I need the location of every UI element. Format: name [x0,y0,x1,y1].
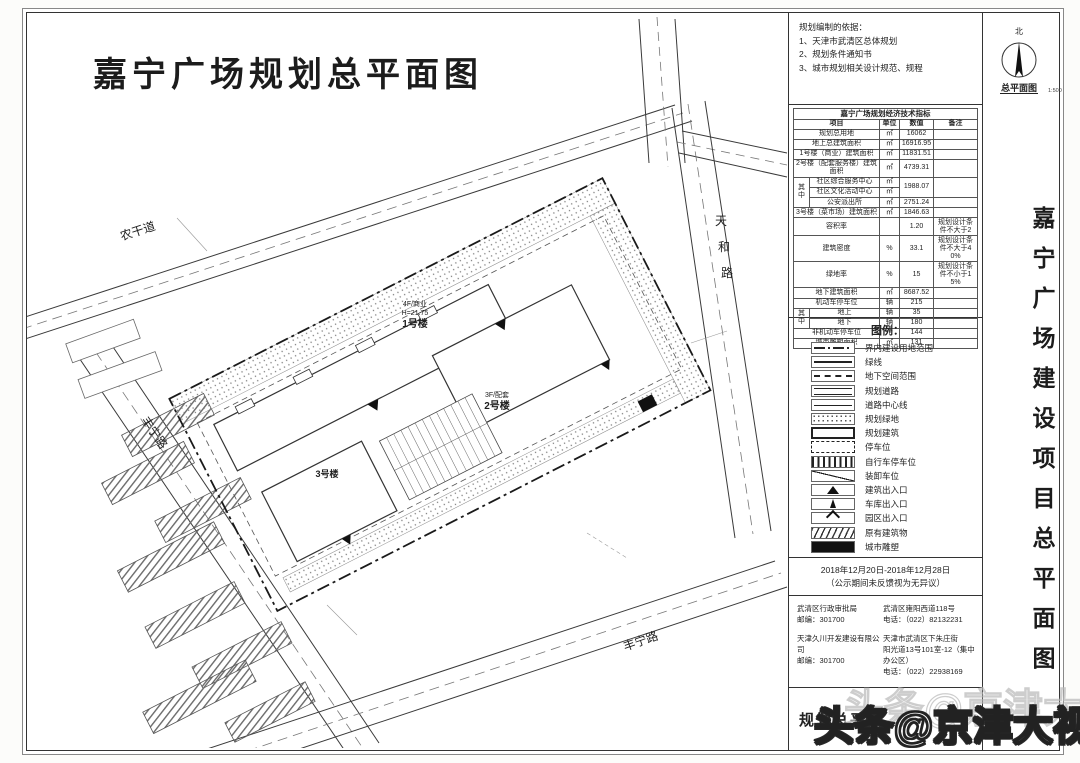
drawing-title: 嘉宁广场规划总平面图 [93,47,483,96]
table-cell: 其中 [794,177,810,207]
table-cell: 地上 [810,308,880,318]
watermark: 头条@京津大视野 [814,694,1080,752]
compass-scale: 1:500 [1048,88,1062,94]
legend-item: 园区出入口 [799,511,976,525]
tech-indicator-table: 嘉宁广场规划经济技术指标项目单位数值备注规划总用地㎡16062地上总建筑面积㎡1… [793,108,978,349]
table-cell [934,288,978,298]
road-label-fengninglu-south: 丰宁路 [621,628,660,654]
legend-label: 规划道路 [865,385,899,397]
building-1-height: H=21.75 [402,310,429,317]
legend-label: 停车位 [865,441,891,453]
table-cell [934,149,978,159]
legend-label: 界内建设用地范围 [865,342,933,354]
table-header-cell: 数值 [900,119,934,129]
table-cell: 社区文化活动中心 [810,187,880,197]
table-cell: 16062 [900,129,934,139]
center-line-swatch [811,399,855,411]
diag-line-swatch [811,470,855,482]
table-cell [934,159,978,177]
table-cell: ㎡ [880,187,900,197]
contact-line: 武清区行政审批局 [797,603,883,614]
tech-indicator-section: 嘉宁广场规划经济技术指标项目单位数值备注规划总用地㎡16062地上总建筑面积㎡1… [789,105,982,318]
note-item: 3、城市规划相关设计规范、规程 [799,62,976,75]
legend-label: 道路中心线 [865,399,908,411]
table-cell [934,177,978,197]
table-cell: % [880,236,900,262]
basis-notes: 规划编制的依据： 1、天津市武清区总体规划2、规划条件通知书3、城市规划相关设计… [789,13,982,105]
contact-block: 武清区行政审批局邮编：301700武清区雍阳西道118号电话：（022）8213… [797,603,978,626]
drawing-sheet: 嘉宁广场规划总平面图 [22,8,1064,755]
contact-block: 天津久川开发建设有限公司邮编：301700天津市武清区下朱庄街阳光道13号101… [797,633,978,678]
table-cell: 辆 [880,298,900,308]
table-cell: 2号楼（配套服务楼）建筑面积 [794,159,880,177]
building-1-info: 4F/商业 [403,299,427,308]
solid-fill-swatch [811,541,855,553]
table-cell: 绿地率 [794,262,880,288]
table-cell: 1.20 [900,218,934,236]
sheet-frame: 嘉宁广场规划总平面图 [26,12,1060,751]
table-cell: ㎡ [880,159,900,177]
legend-item: 道路中心线 [799,398,976,412]
dot-fill-swatch [811,413,855,425]
legend-item: 城市雕塑 [799,540,976,554]
basis-notes-list: 1、天津市武清区总体规划2、规划条件通知书3、城市规划相关设计规范、规程 [799,35,976,75]
legend-label: 园区出入口 [865,512,908,524]
table-cell: % [880,262,900,288]
table-cell: 1号楼（商业）建筑面积 [794,149,880,159]
legend-label: 建筑出入口 [865,484,908,496]
table-cell: 规划设计条件不小于15% [934,262,978,288]
legend-item: 原有建筑物 [799,525,976,539]
legend-item: 规划建筑 [799,426,976,440]
table-cell: 16916.95 [900,139,934,149]
table-cell: 容积率 [794,218,880,236]
legend-title: 图例： [799,322,976,338]
building-3-name: 3号楼 [315,468,338,479]
legend-item: 界内建设用地范围 [799,341,976,355]
table-cell: 地下建筑面积 [794,288,880,298]
table-cell: 地上总建筑面积 [794,139,880,149]
legend-label: 规划绿地 [865,413,899,425]
table-cell: 规划总用地 [794,129,880,139]
legend-item: 绿线 [799,355,976,369]
legend-item: 地下空间范围 [799,369,976,383]
table-cell: 8687.52 [900,288,934,298]
building-2-name: 2号楼 [484,399,510,412]
table-cell: 机动车停车位 [794,298,880,308]
note-item: 1、天津市武清区总体规划 [799,35,976,48]
table-cell: 规划设计条件不大于2 [934,218,978,236]
table-cell: ㎡ [880,288,900,298]
table-header-cell: 备注 [934,119,978,129]
table-cell: 公安派出所 [810,198,880,208]
contact-line: 电话：（022）82132231 [883,614,978,625]
table-cell: 4739.31 [900,159,934,177]
table-cell: 2751.24 [900,198,934,208]
legend-section: 图例： 界内建设用地范围绿线地下空间范围规划道路道路中心线规划绿地规划建筑停车位… [789,318,982,558]
table-cell: 建筑密度 [794,236,880,262]
table-cell: 215 [900,298,934,308]
table-cell: 35 [900,308,934,318]
contact-line: 天津市武清区下朱庄街 [883,633,978,644]
contact-info-section: 武清区行政审批局邮编：301700武清区雍阳西道118号电话：（022）8213… [789,596,982,688]
dashed-line-swatch [811,370,855,382]
building-2-info: 3F/配套 [485,390,509,399]
contact-right: 武清区雍阳西道118号电话：（022）82132231 [883,603,978,626]
legend-item: 规划道路 [799,384,976,398]
tri-narrow-swatch [811,498,855,510]
legend-label: 规划建筑 [865,427,899,439]
compass-caption: 总平面图 [1001,82,1037,93]
publicity-date-range: 2018年12月20日-2018年12月28日 [789,564,982,577]
contact-line: 天津久川开发建设有限公司 [797,633,883,656]
table-title: 嘉宁广场规划经济技术指标 [794,109,978,120]
table-header-cell: 项目 [794,119,880,129]
table-cell: 1988.07 [900,177,934,197]
table-cell: 11831.51 [900,149,934,159]
table-cell: 1846.63 [900,208,934,218]
tri-filled-swatch [811,484,855,496]
table-cell: 15 [900,262,934,288]
solid-line-swatch [811,356,855,368]
table-cell: 规划设计条件不大于40% [934,236,978,262]
diag-hatch-swatch [811,527,855,539]
side-title-bar: 北 总平面图 1:500 嘉宁广场建设项目总平面图 [983,13,1059,750]
contact-line: 邮编：301700 [797,614,883,625]
table-cell [934,129,978,139]
legend-label: 绿线 [865,356,882,368]
table-cell: ㎡ [880,177,900,187]
compass-needle [1015,42,1023,77]
legend-item: 建筑出入口 [799,483,976,497]
legend-list: 界内建设用地范围绿线地下空间范围规划道路道路中心线规划绿地规划建筑停车位自行车停… [799,341,976,554]
contact-line: 邮编：301700 [797,655,883,666]
table-cell: ㎡ [880,149,900,159]
legend-label: 车库出入口 [865,498,908,510]
north-compass: 北 总平面图 1:500 [979,21,1063,101]
legend-label: 装卸车位 [865,470,899,482]
publicity-note: （公示期间未反馈视为无异议） [789,577,982,590]
scanned-plan-page: 嘉宁广场规划总平面图 [0,0,1080,763]
contact-line: 阳光道13号101室-12（集中办公区） [883,644,978,667]
basis-notes-heading: 规划编制的依据： [799,21,976,34]
note-item: 2、规划条件通知书 [799,48,976,61]
chevron-swatch [811,512,855,524]
table-header-cell: 单位 [880,119,900,129]
legend-item: 车库出入口 [799,497,976,511]
table-cell: 33.1 [900,236,934,262]
table-cell: ㎡ [880,208,900,218]
table-cell [934,308,978,318]
green-band-east [590,203,710,403]
building-1-name: 1号楼 [402,317,428,330]
table-cell: 辆 [880,308,900,318]
table-cell [934,139,978,149]
dashdot-line-swatch [811,342,855,354]
legend-item: 停车位 [799,440,976,454]
table-cell: 社区综合服务中心 [810,177,880,187]
info-column: 规划编制的依据： 1、天津市武清区总体规划2、规划条件通知书3、城市规划相关设计… [788,13,983,750]
contact-left: 武清区行政审批局邮编：301700 [797,603,883,626]
legend-item: 规划绿地 [799,412,976,426]
legend-label: 城市雕塑 [865,541,899,553]
road-label-nonggandao: 农干道 [118,219,157,243]
publicity-dates-section: 2018年12月20日-2018年12月28日 （公示期间未反馈视为无异议） [789,558,982,596]
legend-label: 原有建筑物 [865,527,908,539]
bold-outline-swatch [811,427,855,439]
legend-item: 自行车停车位 [799,455,976,469]
legend-label: 地下空间范围 [865,370,916,382]
contact-left: 天津久川开发建设有限公司邮编：301700 [797,633,883,678]
contact-line: 武清区雍阳西道118号 [883,603,978,614]
legend-label: 自行车停车位 [865,456,916,468]
context-outline-buildings [66,319,162,398]
compass-north-label: 北 [1015,27,1023,36]
table-cell: ㎡ [880,139,900,149]
double-line-swatch [811,385,855,397]
road-label-tianhelu-2: 和 [718,240,730,254]
table-cell [934,198,978,208]
site-plan-canvas: 4F/商业 H=21.75 1号楼 3F/配套 2号楼 3号楼 农干道 天 和 … [27,13,788,748]
project-side-title: 嘉宁广场建设项目总平面图 [983,141,1059,750]
road-label-tianhelu-3: 路 [721,265,733,280]
legend-item: 装卸车位 [799,469,976,483]
table-cell: 3号楼（菜市场）建筑面积 [794,208,880,218]
dashed-box-swatch [811,441,855,453]
table-cell [934,208,978,218]
table-cell [880,218,900,236]
contact-right: 天津市武清区下朱庄街阳光道13号101室-12（集中办公区）电话：（022）22… [883,633,978,678]
table-cell: ㎡ [880,129,900,139]
table-cell: ㎡ [880,198,900,208]
site-plan-drawing: 嘉宁广场规划总平面图 [27,13,788,750]
road-label-tianhelu-1: 天 [715,214,727,228]
table-cell [934,298,978,308]
vert-hatch-swatch [811,456,855,468]
